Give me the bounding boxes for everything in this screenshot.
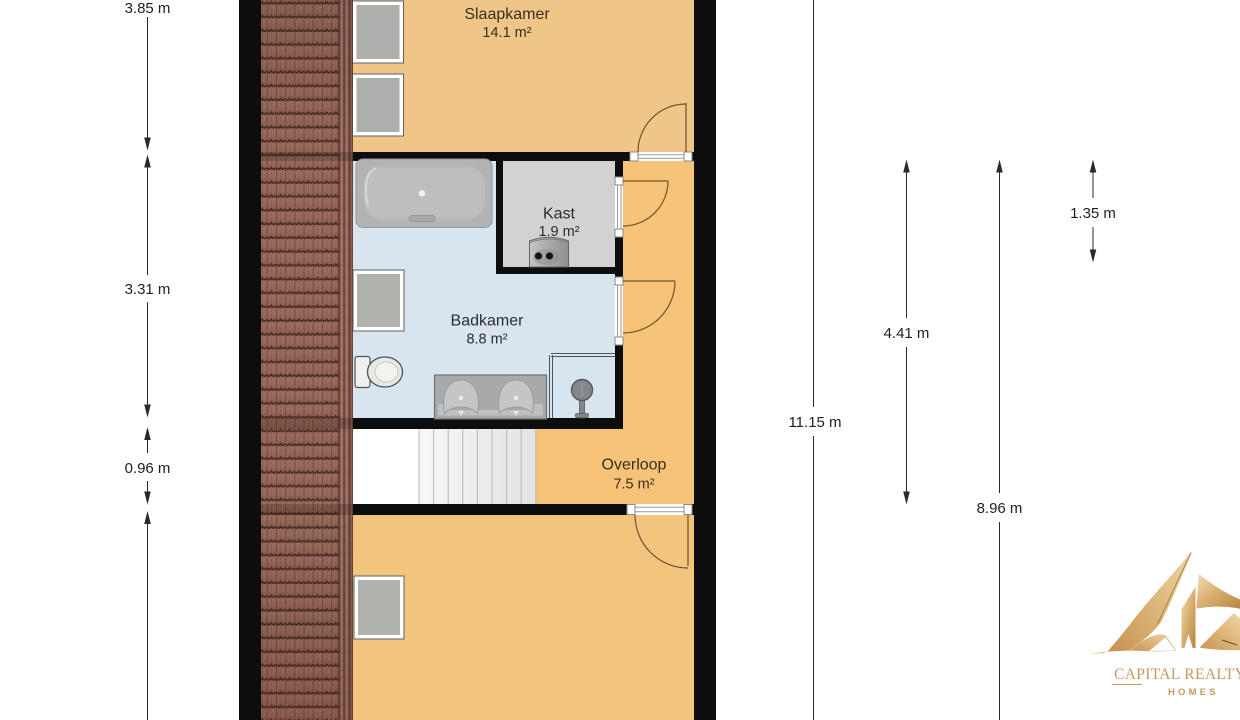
svg-text:Overloop: Overloop	[602, 457, 667, 474]
svg-text:1.35 m: 1.35 m	[1070, 205, 1116, 222]
svg-text:14.1 m²: 14.1 m²	[482, 25, 531, 41]
svg-text:Kast: Kast	[543, 206, 576, 223]
svg-text:8.8 m²: 8.8 m²	[466, 332, 507, 348]
svg-text:HOMES: HOMES	[1168, 687, 1219, 698]
svg-text:3.31 m: 3.31 m	[125, 281, 171, 298]
svg-text:Slaapkamer: Slaapkamer	[464, 6, 550, 23]
svg-text:8.96 m: 8.96 m	[977, 500, 1023, 517]
svg-text:3.85 m: 3.85 m	[125, 0, 171, 17]
svg-text:0.96 m: 0.96 m	[125, 460, 171, 477]
svg-text:4.41 m: 4.41 m	[884, 325, 930, 342]
svg-text:11.15 m: 11.15 m	[788, 414, 841, 431]
svg-text:Badkamer: Badkamer	[451, 313, 525, 330]
svg-text:7.5 m²: 7.5 m²	[613, 477, 654, 493]
svg-text:CAPITAL REALTY: CAPITAL REALTY	[1114, 666, 1240, 683]
svg-text:1.9 m²: 1.9 m²	[538, 224, 579, 240]
